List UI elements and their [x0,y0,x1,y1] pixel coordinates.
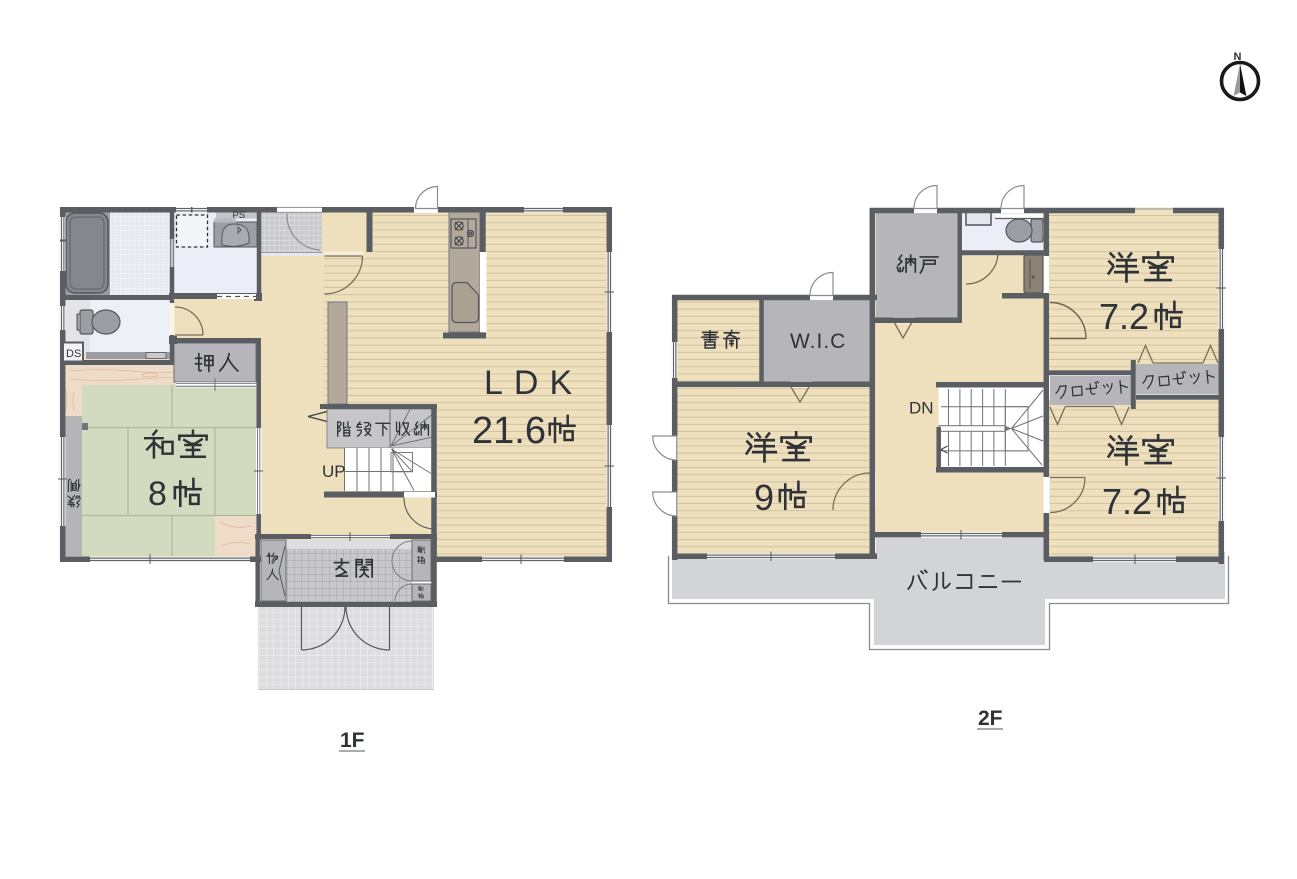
svg-text:21.6: 21.6 [472,410,546,452]
svg-text:DN: DN [909,399,934,418]
svg-text:DS: DS [66,348,81,360]
svg-text:N: N [1234,51,1242,63]
svg-text:7.2: 7.2 [1099,296,1149,337]
svg-text:9: 9 [754,477,774,518]
svg-text:8: 8 [148,475,167,513]
svg-text:2F: 2F [978,707,1003,730]
svg-text:1F: 1F [340,729,365,752]
svg-text:LDK: LDK [484,364,583,402]
svg-text:W.I.C: W.I.C [790,330,846,353]
svg-text:7.2: 7.2 [1102,481,1152,522]
svg-text:PS: PS [233,210,246,221]
svg-text:UP: UP [322,462,346,481]
